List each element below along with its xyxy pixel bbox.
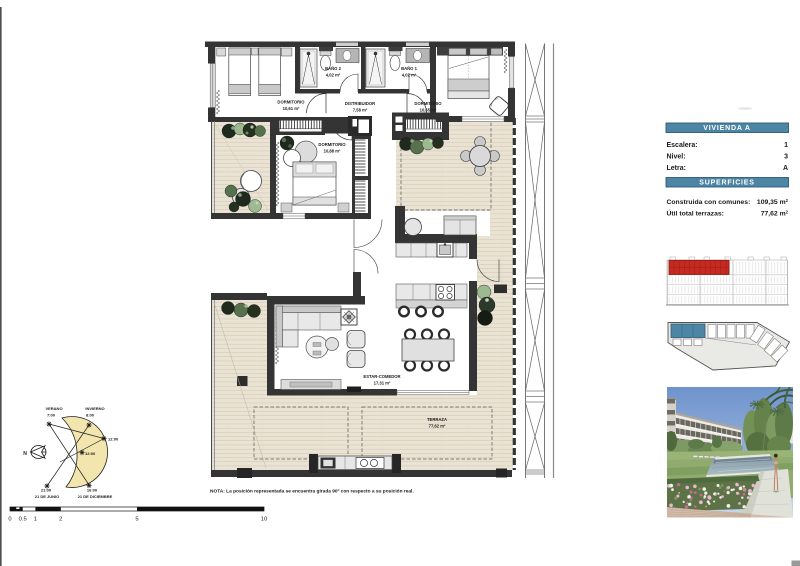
svg-text:VIVIENDA A: VIVIENDA A: [703, 125, 751, 132]
svg-text:77,62 m2: 77,62 m2: [761, 210, 789, 218]
svg-text:7,58 m²: 7,58 m²: [353, 108, 368, 113]
svg-text:TERRAZA: TERRAZA: [427, 417, 447, 422]
svg-text:10: 10: [261, 517, 267, 523]
svg-text:1: 1: [34, 517, 37, 523]
svg-text:21 DE JUNIO: 21 DE JUNIO: [35, 494, 59, 499]
svg-text:12:00: 12:00: [85, 451, 96, 456]
svg-text:16:00: 16:00: [87, 488, 98, 493]
svg-text:DISTRIBUIDOR: DISTRIBUIDOR: [345, 101, 375, 106]
svg-text:12:00: 12:00: [108, 437, 119, 442]
svg-text:77,62 m²: 77,62 m²: [429, 424, 446, 429]
svg-text:3: 3: [784, 154, 788, 161]
svg-text:21:00: 21:00: [41, 488, 52, 493]
svg-text:109,35 m2: 109,35 m2: [757, 198, 789, 206]
svg-text:5: 5: [135, 517, 138, 523]
svg-text:N: N: [23, 451, 27, 457]
svg-text:21 DE DICIEMBRE: 21 DE DICIEMBRE: [78, 494, 113, 499]
svg-text:Escalera:: Escalera:: [667, 142, 698, 149]
svg-text:1: 1: [784, 142, 788, 149]
svg-text:ESTAR-COMEDOR: ESTAR-COMEDOR: [363, 374, 400, 379]
svg-text:A: A: [783, 165, 788, 172]
svg-text:Construida con comunes:: Construida con comunes:: [667, 199, 751, 206]
svg-text:10,88 m²: 10,88 m²: [324, 149, 341, 154]
svg-text:INVIERNO: INVIERNO: [85, 406, 104, 411]
svg-text:Letra:: Letra:: [667, 165, 686, 172]
svg-text:8:00: 8:00: [86, 413, 95, 418]
svg-text:4,02 m²: 4,02 m²: [326, 73, 341, 78]
svg-text:Útil total terrazas:: Útil total terrazas:: [667, 209, 724, 218]
svg-text:4,02 m²: 4,02 m²: [402, 73, 417, 78]
svg-text:DORMITORIO: DORMITORIO: [277, 100, 305, 105]
svg-text:0.5: 0.5: [19, 517, 27, 523]
svg-text:Nivel:: Nivel:: [667, 154, 686, 161]
svg-text:DORMITORIO: DORMITORIO: [318, 142, 346, 147]
svg-text:17,31 m²: 17,31 m²: [374, 381, 391, 386]
svg-text:BAÑO 2: BAÑO 2: [325, 66, 341, 71]
svg-text:BAÑO 1: BAÑO 1: [401, 66, 417, 71]
svg-text:10,61 m²: 10,61 m²: [283, 106, 300, 111]
svg-text:VERANO: VERANO: [45, 406, 62, 411]
svg-text:NOTA: La posición representada: NOTA: La posición representada se encuen…: [210, 489, 414, 495]
svg-text:SUPERFICIES: SUPERFICIES: [699, 180, 754, 187]
svg-text:7:00: 7:00: [47, 413, 56, 418]
svg-text:DORMITORIO: DORMITORIO: [414, 101, 442, 106]
svg-text:0: 0: [8, 517, 11, 523]
svg-text:10,65 m²: 10,65 m²: [420, 108, 437, 113]
svg-text:2: 2: [59, 517, 62, 523]
